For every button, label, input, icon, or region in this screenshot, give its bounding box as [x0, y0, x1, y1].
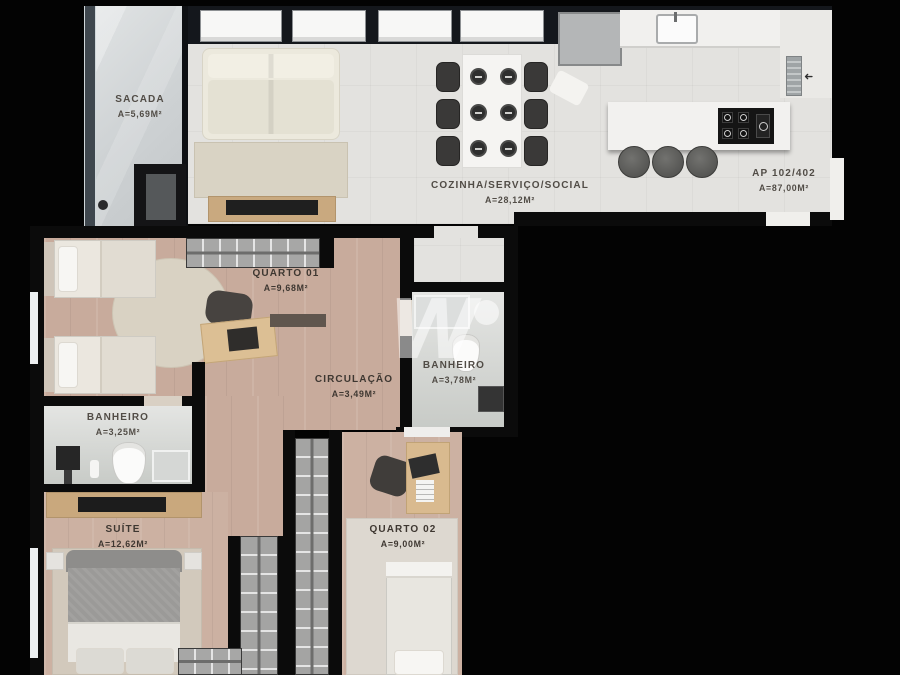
bathroom-sink-cabinet [478, 386, 504, 412]
single-bed-2-headboard [44, 338, 54, 392]
banheiro-social-top-wall [400, 282, 504, 292]
kitchen-counter [620, 10, 782, 48]
quarto02-paper [416, 480, 434, 502]
quarto01-shelf [270, 314, 326, 327]
cooktop-dial-icon [756, 114, 770, 138]
room-name: QUARTO 01 [253, 268, 320, 279]
room-label-cozinha: COZINHA/SERVIÇO/SOCIAL A=28,12m² [412, 178, 608, 207]
room-name: QUARTO 02 [370, 524, 437, 535]
room-name: COZINHA/SERVIÇO/SOCIAL [431, 180, 589, 191]
window [292, 10, 366, 42]
apartment-unit: AP 102/402 [752, 168, 816, 179]
hall-opening [434, 226, 478, 238]
apartment-label: AP 102/402 A=87,00m² [736, 166, 832, 195]
room-label-quarto02: QUARTO 02 A=9,00m² [348, 522, 458, 551]
door-arrow-icon: ➜ [804, 70, 813, 83]
room-name: CIRCULAÇÃO [315, 374, 393, 385]
window [460, 10, 544, 42]
banheiro-social-door [400, 300, 412, 336]
radiator [786, 56, 802, 96]
dining-chair [436, 62, 460, 92]
shower-box [152, 450, 190, 482]
plate [470, 68, 487, 85]
room-label-banheiro-suite: BANHEIRO A=3,25m² [60, 410, 176, 439]
burner-icon [738, 128, 749, 139]
suite-pillow [76, 648, 124, 674]
plate [500, 104, 517, 121]
plate [470, 140, 487, 157]
room-area: A=5,69m² [96, 108, 184, 122]
window [200, 10, 282, 42]
kitchen-sink [656, 14, 698, 44]
balcony-glass-rail [84, 6, 96, 230]
single-bed-1-blanket [100, 241, 155, 297]
suite-window [30, 548, 38, 658]
quarto02-bed-fold [386, 562, 452, 578]
wardrobe-end-wall [320, 236, 334, 268]
hall-closet-right-wall [329, 430, 342, 675]
dining-chair [524, 99, 548, 129]
suite-closet [240, 536, 278, 675]
quarto01-wardrobe [186, 238, 320, 268]
main-entry-door [830, 158, 844, 220]
dining-chair [436, 99, 460, 129]
room-area: A=3,49m² [292, 388, 416, 402]
quarto02-pillow [394, 650, 444, 675]
room-name: SACADA [115, 94, 164, 105]
suite-tv [78, 497, 166, 512]
balcony-cabinet-top [146, 174, 176, 220]
suite-nightstand [184, 552, 202, 570]
shower-box [414, 295, 470, 329]
quarto01-laptop [227, 326, 259, 351]
towel-stand [56, 446, 80, 470]
single-bed-1-headboard [44, 242, 54, 296]
burner-icon [722, 112, 733, 123]
burner-icon [722, 128, 733, 139]
suite-bed-blanket [68, 568, 180, 624]
plate [500, 68, 517, 85]
bedroom-window [30, 292, 38, 364]
suite-nightstand [46, 552, 64, 570]
service-door [766, 212, 810, 226]
living-rug [194, 142, 348, 198]
dining-chair [524, 62, 548, 92]
banheiro-suite-door [144, 396, 182, 406]
room-label-sacada: SACADA A=5,69m² [96, 92, 184, 121]
room-name: SUÍTE [106, 524, 141, 535]
bar-stool [618, 146, 650, 178]
balcony-sconce [98, 200, 108, 210]
window [378, 10, 452, 42]
mid-right-wall [504, 226, 518, 437]
floorplan-canvas: ➜ COZINHA/SERVIÇO/SOCIAL A=28,12m² AP 10… [0, 0, 900, 675]
suite-closet-leg [178, 648, 242, 675]
cooktop [718, 108, 774, 144]
room-area: A=28,12m² [412, 194, 608, 208]
fridge [558, 12, 622, 66]
bar-stool [652, 146, 684, 178]
room-area: A=9,00m² [348, 538, 458, 552]
room-label-quarto01: QUARTO 01 A=9,68m² [230, 266, 342, 295]
single-bed-1-pillow [58, 246, 78, 292]
towel-stand-pole [64, 470, 72, 484]
dining-chair [436, 136, 460, 166]
hall-closet-left-wall [283, 430, 295, 675]
single-bed-2-pillow [58, 342, 78, 388]
sofa-seat-cushions [208, 80, 334, 134]
room-label-banheiro-social: BANHEIRO A=3,78m² [404, 358, 504, 387]
bar-stool [686, 146, 718, 178]
room-area: A=3,78m² [404, 374, 504, 388]
quarto02-door [404, 427, 450, 437]
room-area: A=9,68m² [230, 282, 342, 296]
plate [470, 104, 487, 121]
room-name: BANHEIRO [423, 360, 485, 371]
sofa-back-cushions [208, 54, 334, 78]
room-area: A=3,25m² [60, 426, 176, 440]
suite-top-wall [44, 484, 204, 492]
hall-closet [295, 438, 329, 675]
room-label-circulacao: CIRCULAÇÃO A=3,49m² [292, 372, 416, 401]
dining-chair [524, 136, 548, 166]
plate [500, 140, 517, 157]
toilet [112, 442, 146, 484]
suite-pillow [126, 648, 174, 674]
apartment-area: A=87,00m² [736, 182, 832, 196]
tv [226, 200, 318, 215]
bath-bottle [90, 460, 99, 478]
room-name: BANHEIRO [87, 412, 149, 423]
banheiro-suite-right-wall [192, 362, 205, 496]
burner-icon [738, 112, 749, 123]
room-label-suite: SUÍTE A=12,62m² [68, 522, 178, 551]
sink-faucet-icon [674, 12, 677, 22]
single-bed-2-blanket [100, 337, 155, 393]
